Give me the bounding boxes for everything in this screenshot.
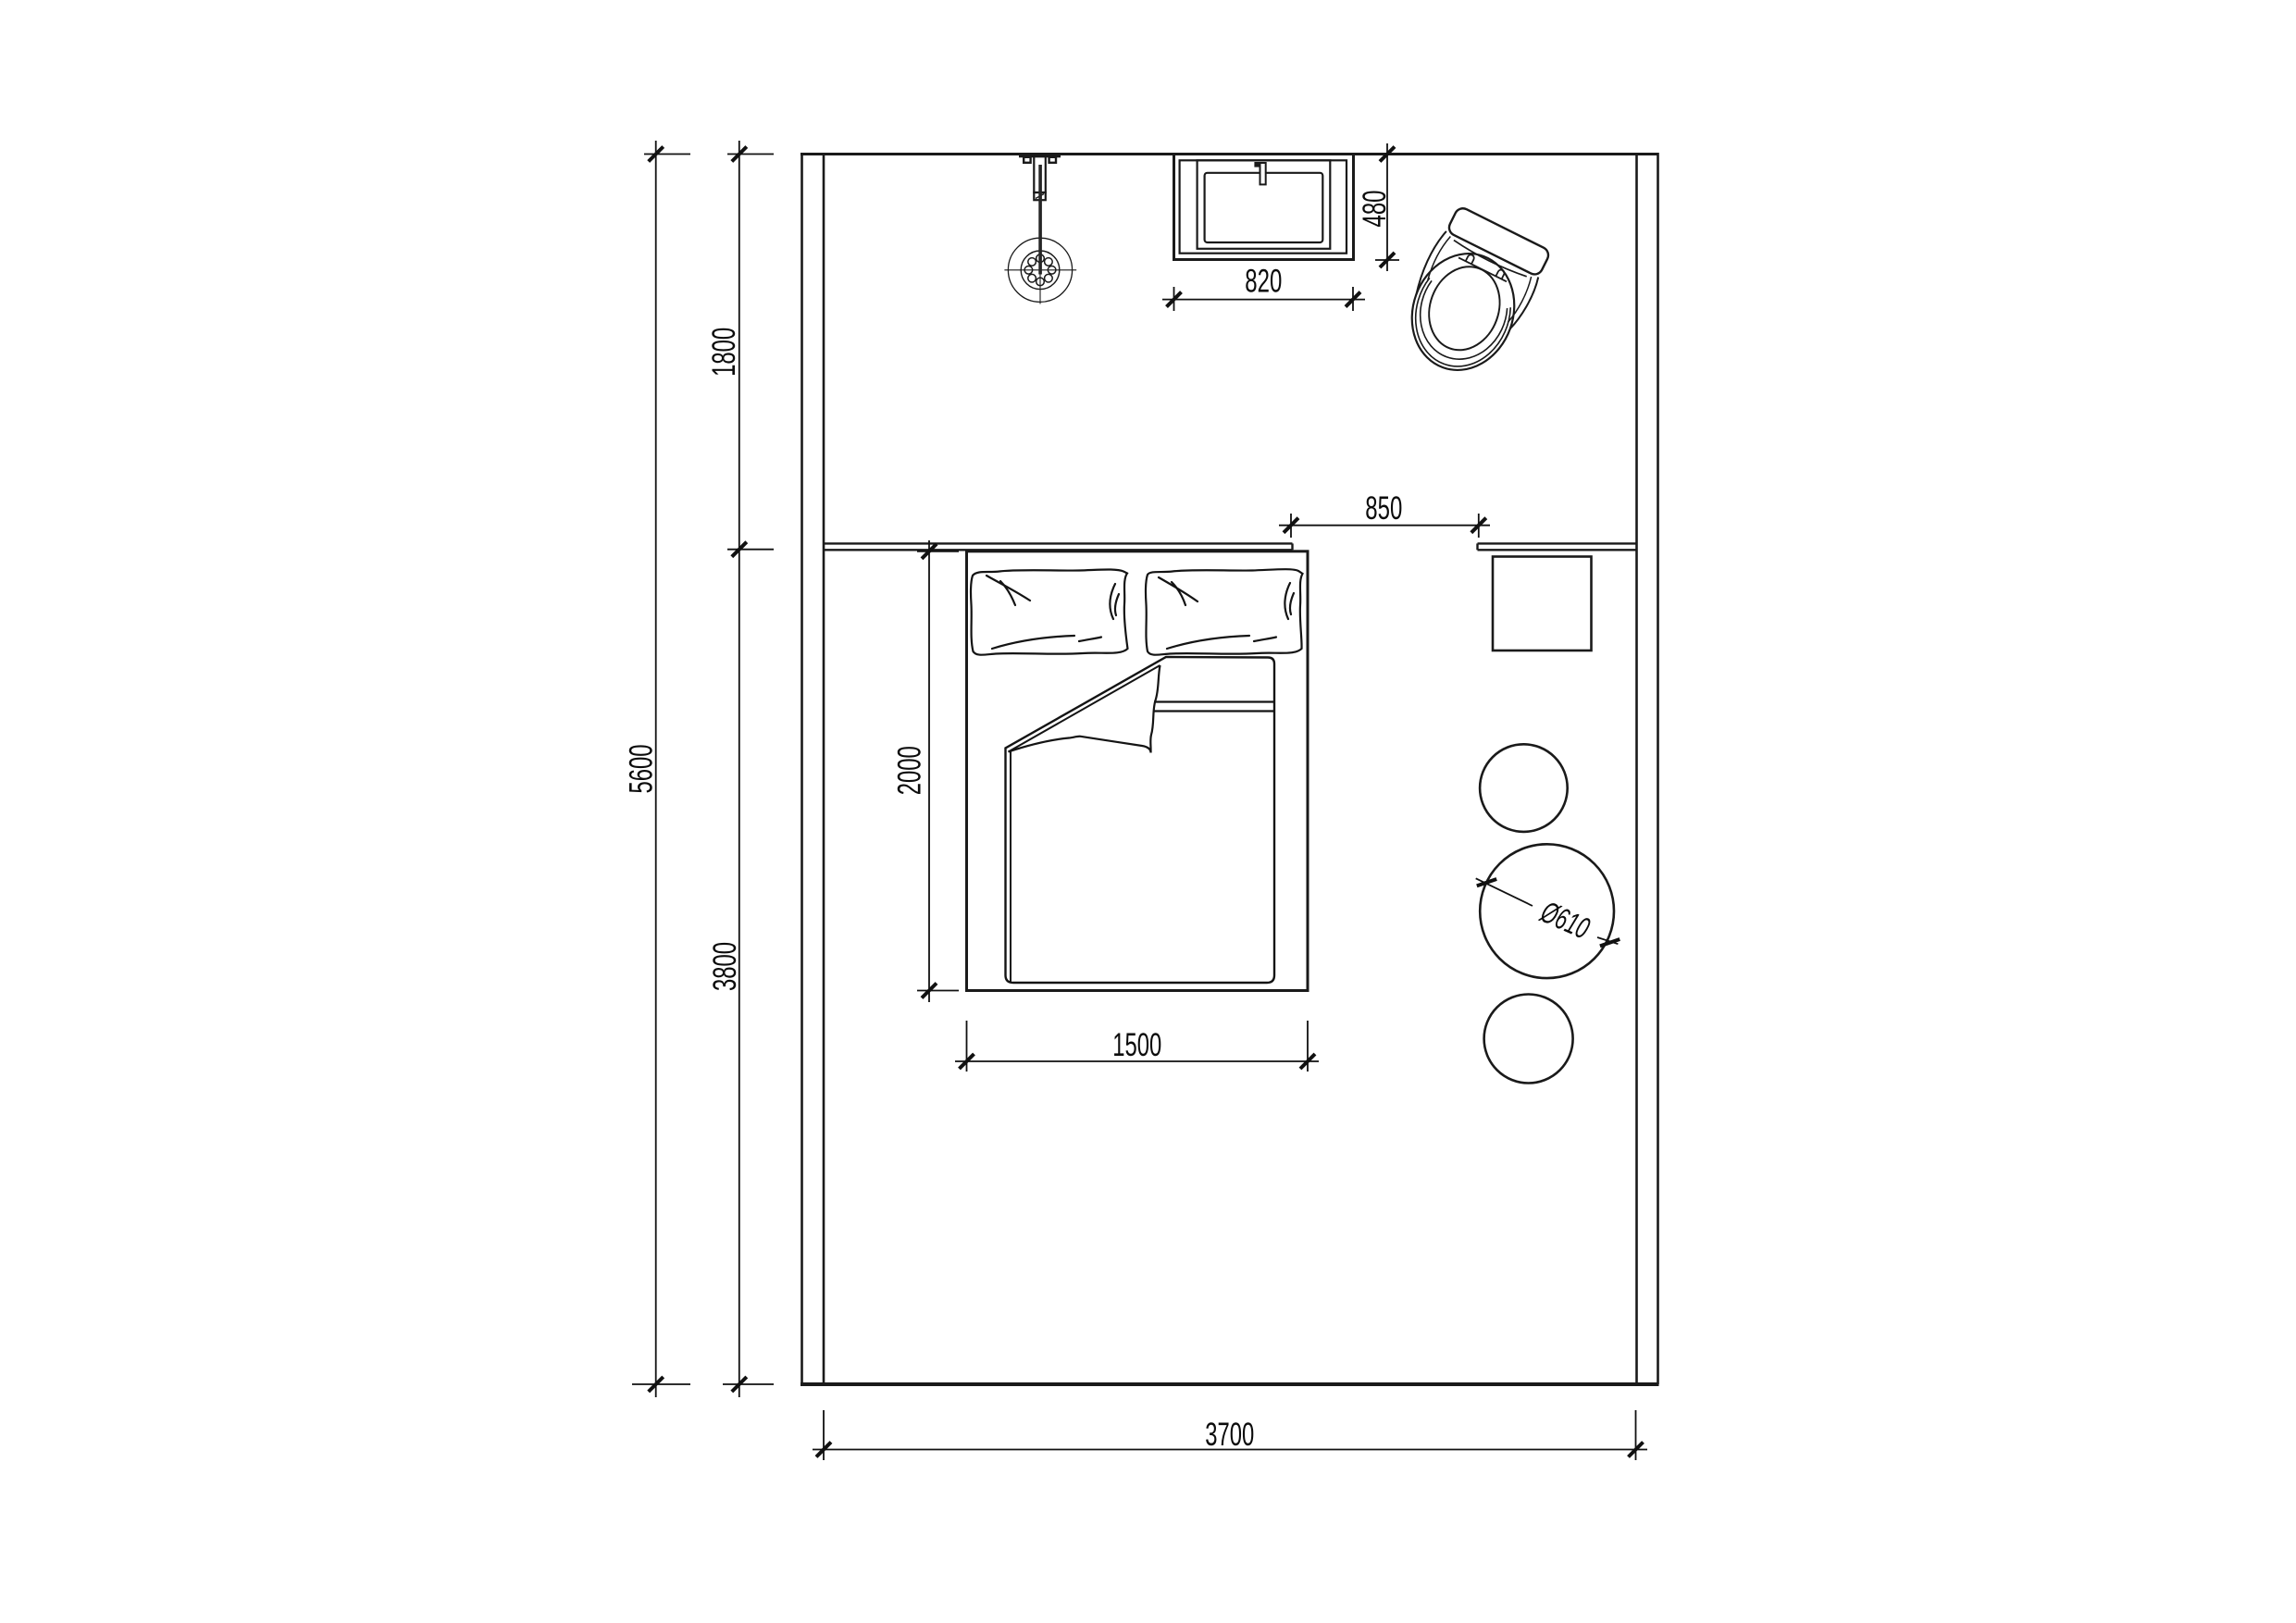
svg-text:850: 850 — [1365, 490, 1402, 527]
svg-text:1500: 1500 — [1112, 1027, 1161, 1063]
svg-text:5600: 5600 — [623, 745, 659, 794]
svg-text:2000: 2000 — [892, 746, 928, 795]
svg-text:3800: 3800 — [707, 942, 743, 991]
svg-text:3700: 3700 — [1205, 1417, 1254, 1453]
svg-text:480: 480 — [1357, 191, 1393, 228]
svg-text:1800: 1800 — [706, 328, 742, 377]
svg-text:820: 820 — [1245, 264, 1282, 300]
